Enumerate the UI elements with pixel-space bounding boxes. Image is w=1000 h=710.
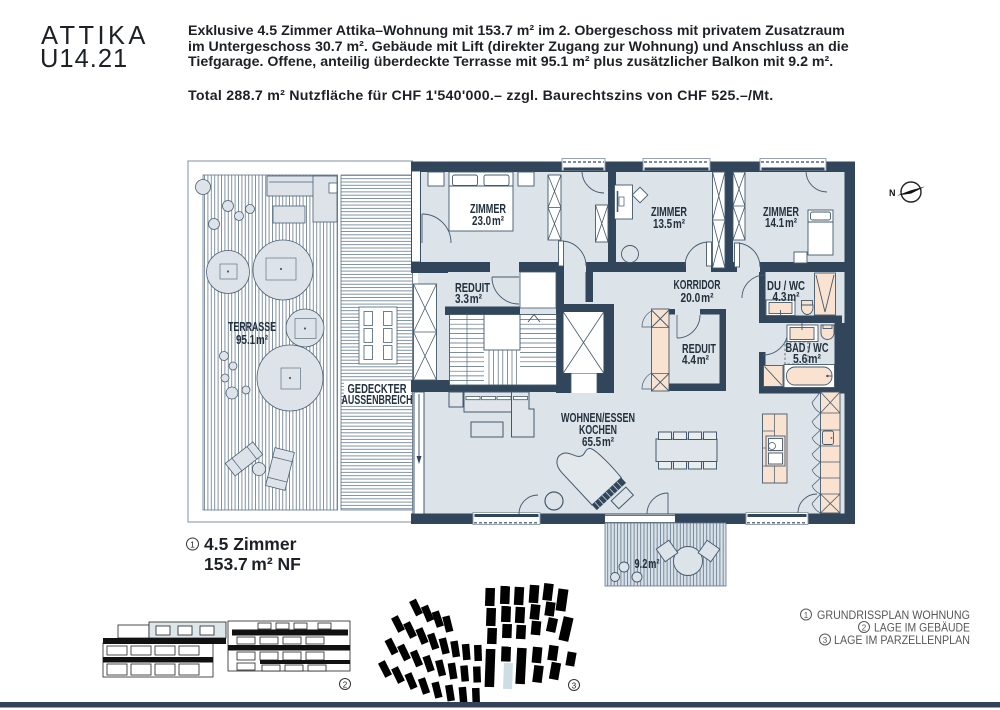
svg-text:65.5 m²: 65.5 m² xyxy=(582,435,614,449)
svg-text:23.0 m²: 23.0 m² xyxy=(472,214,504,228)
svg-text:20.0 m²: 20.0 m² xyxy=(681,291,714,305)
svg-text:4.3 m²: 4.3 m² xyxy=(773,290,800,304)
svg-text:3: 3 xyxy=(823,636,828,645)
svg-text:1: 1 xyxy=(804,611,809,620)
svg-text:3: 3 xyxy=(572,682,577,691)
svg-text:9.2 m²: 9.2 m² xyxy=(635,557,660,571)
svg-text:13.5 m²: 13.5 m² xyxy=(653,217,685,231)
svg-text:TERRASSE: TERRASSE xyxy=(228,320,276,334)
svg-text:14.1 m²: 14.1 m² xyxy=(765,216,797,230)
svg-text:AUSSENBREICH: AUSSENBREICH xyxy=(342,393,413,407)
svg-text:1: 1 xyxy=(190,540,195,550)
svg-text:5.6 m²: 5.6 m² xyxy=(793,352,821,366)
svg-text:4.4 m²: 4.4 m² xyxy=(682,353,709,367)
svg-text:N: N xyxy=(889,188,896,198)
svg-text:LAGE IM GEBÄUDE: LAGE IM GEBÄUDE xyxy=(874,623,970,635)
svg-text:2: 2 xyxy=(343,681,348,690)
svg-text:153.7 m² NF: 153.7 m² NF xyxy=(204,554,301,574)
svg-text:KORRIDOR: KORRIDOR xyxy=(674,278,721,292)
svg-text:2: 2 xyxy=(862,623,867,632)
svg-text:GRUNDRISSPLAN WOHNUNG: GRUNDRISSPLAN WOHNUNG xyxy=(817,610,970,622)
svg-text:95.1 m²: 95.1 m² xyxy=(236,333,268,347)
svg-text:LAGE IM PARZELLENPLAN: LAGE IM PARZELLENPLAN xyxy=(834,635,970,647)
svg-text:4.5 Zimmer: 4.5 Zimmer xyxy=(204,534,297,554)
svg-text:3.3 m²: 3.3 m² xyxy=(455,292,482,306)
